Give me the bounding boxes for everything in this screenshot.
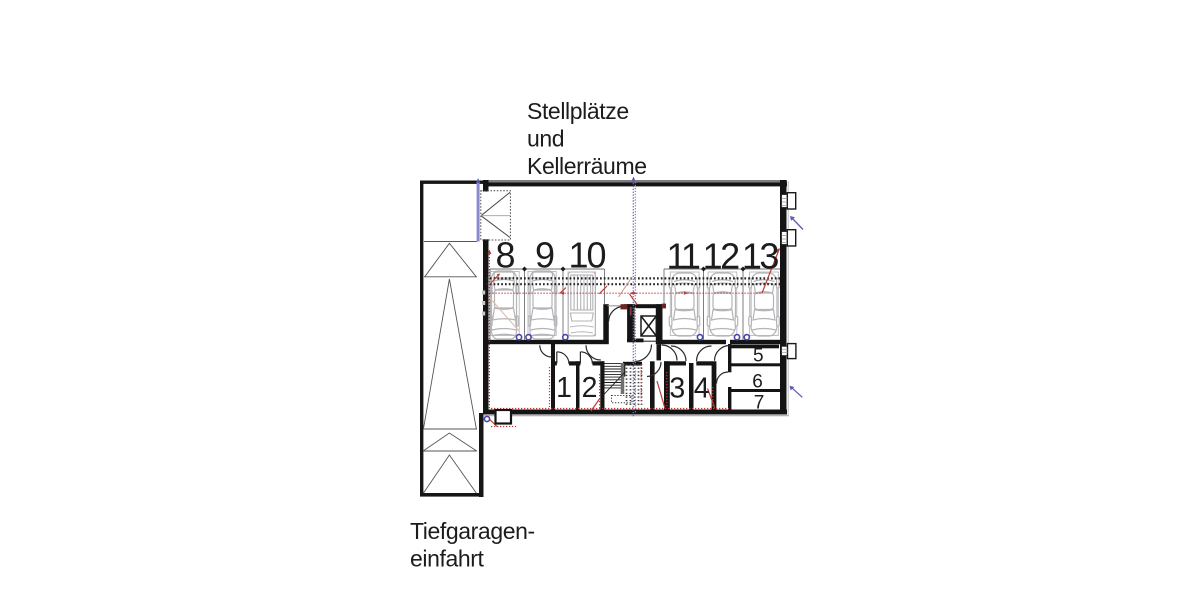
svg-text:3: 3 xyxy=(669,372,685,404)
svg-text:5: 5 xyxy=(753,346,764,367)
svg-text:4: 4 xyxy=(694,372,710,404)
svg-text:8: 8 xyxy=(495,235,515,276)
svg-text:1: 1 xyxy=(556,372,572,404)
svg-text:9: 9 xyxy=(535,235,555,276)
svg-text:12: 12 xyxy=(703,236,740,277)
svg-text:einfahrt: einfahrt xyxy=(410,546,485,572)
svg-text:Tiefgaragen-: Tiefgaragen- xyxy=(410,518,535,544)
svg-text:6: 6 xyxy=(752,372,763,393)
svg-text:Stellplätze: Stellplätze xyxy=(527,98,629,124)
svg-text:2: 2 xyxy=(582,372,598,404)
svg-text:7: 7 xyxy=(754,393,765,414)
svg-text:13: 13 xyxy=(742,236,779,277)
svg-text:10: 10 xyxy=(568,235,605,276)
svg-text:und: und xyxy=(527,126,564,152)
svg-text:11: 11 xyxy=(667,236,700,277)
svg-text:Kellerräume: Kellerräume xyxy=(527,153,647,179)
